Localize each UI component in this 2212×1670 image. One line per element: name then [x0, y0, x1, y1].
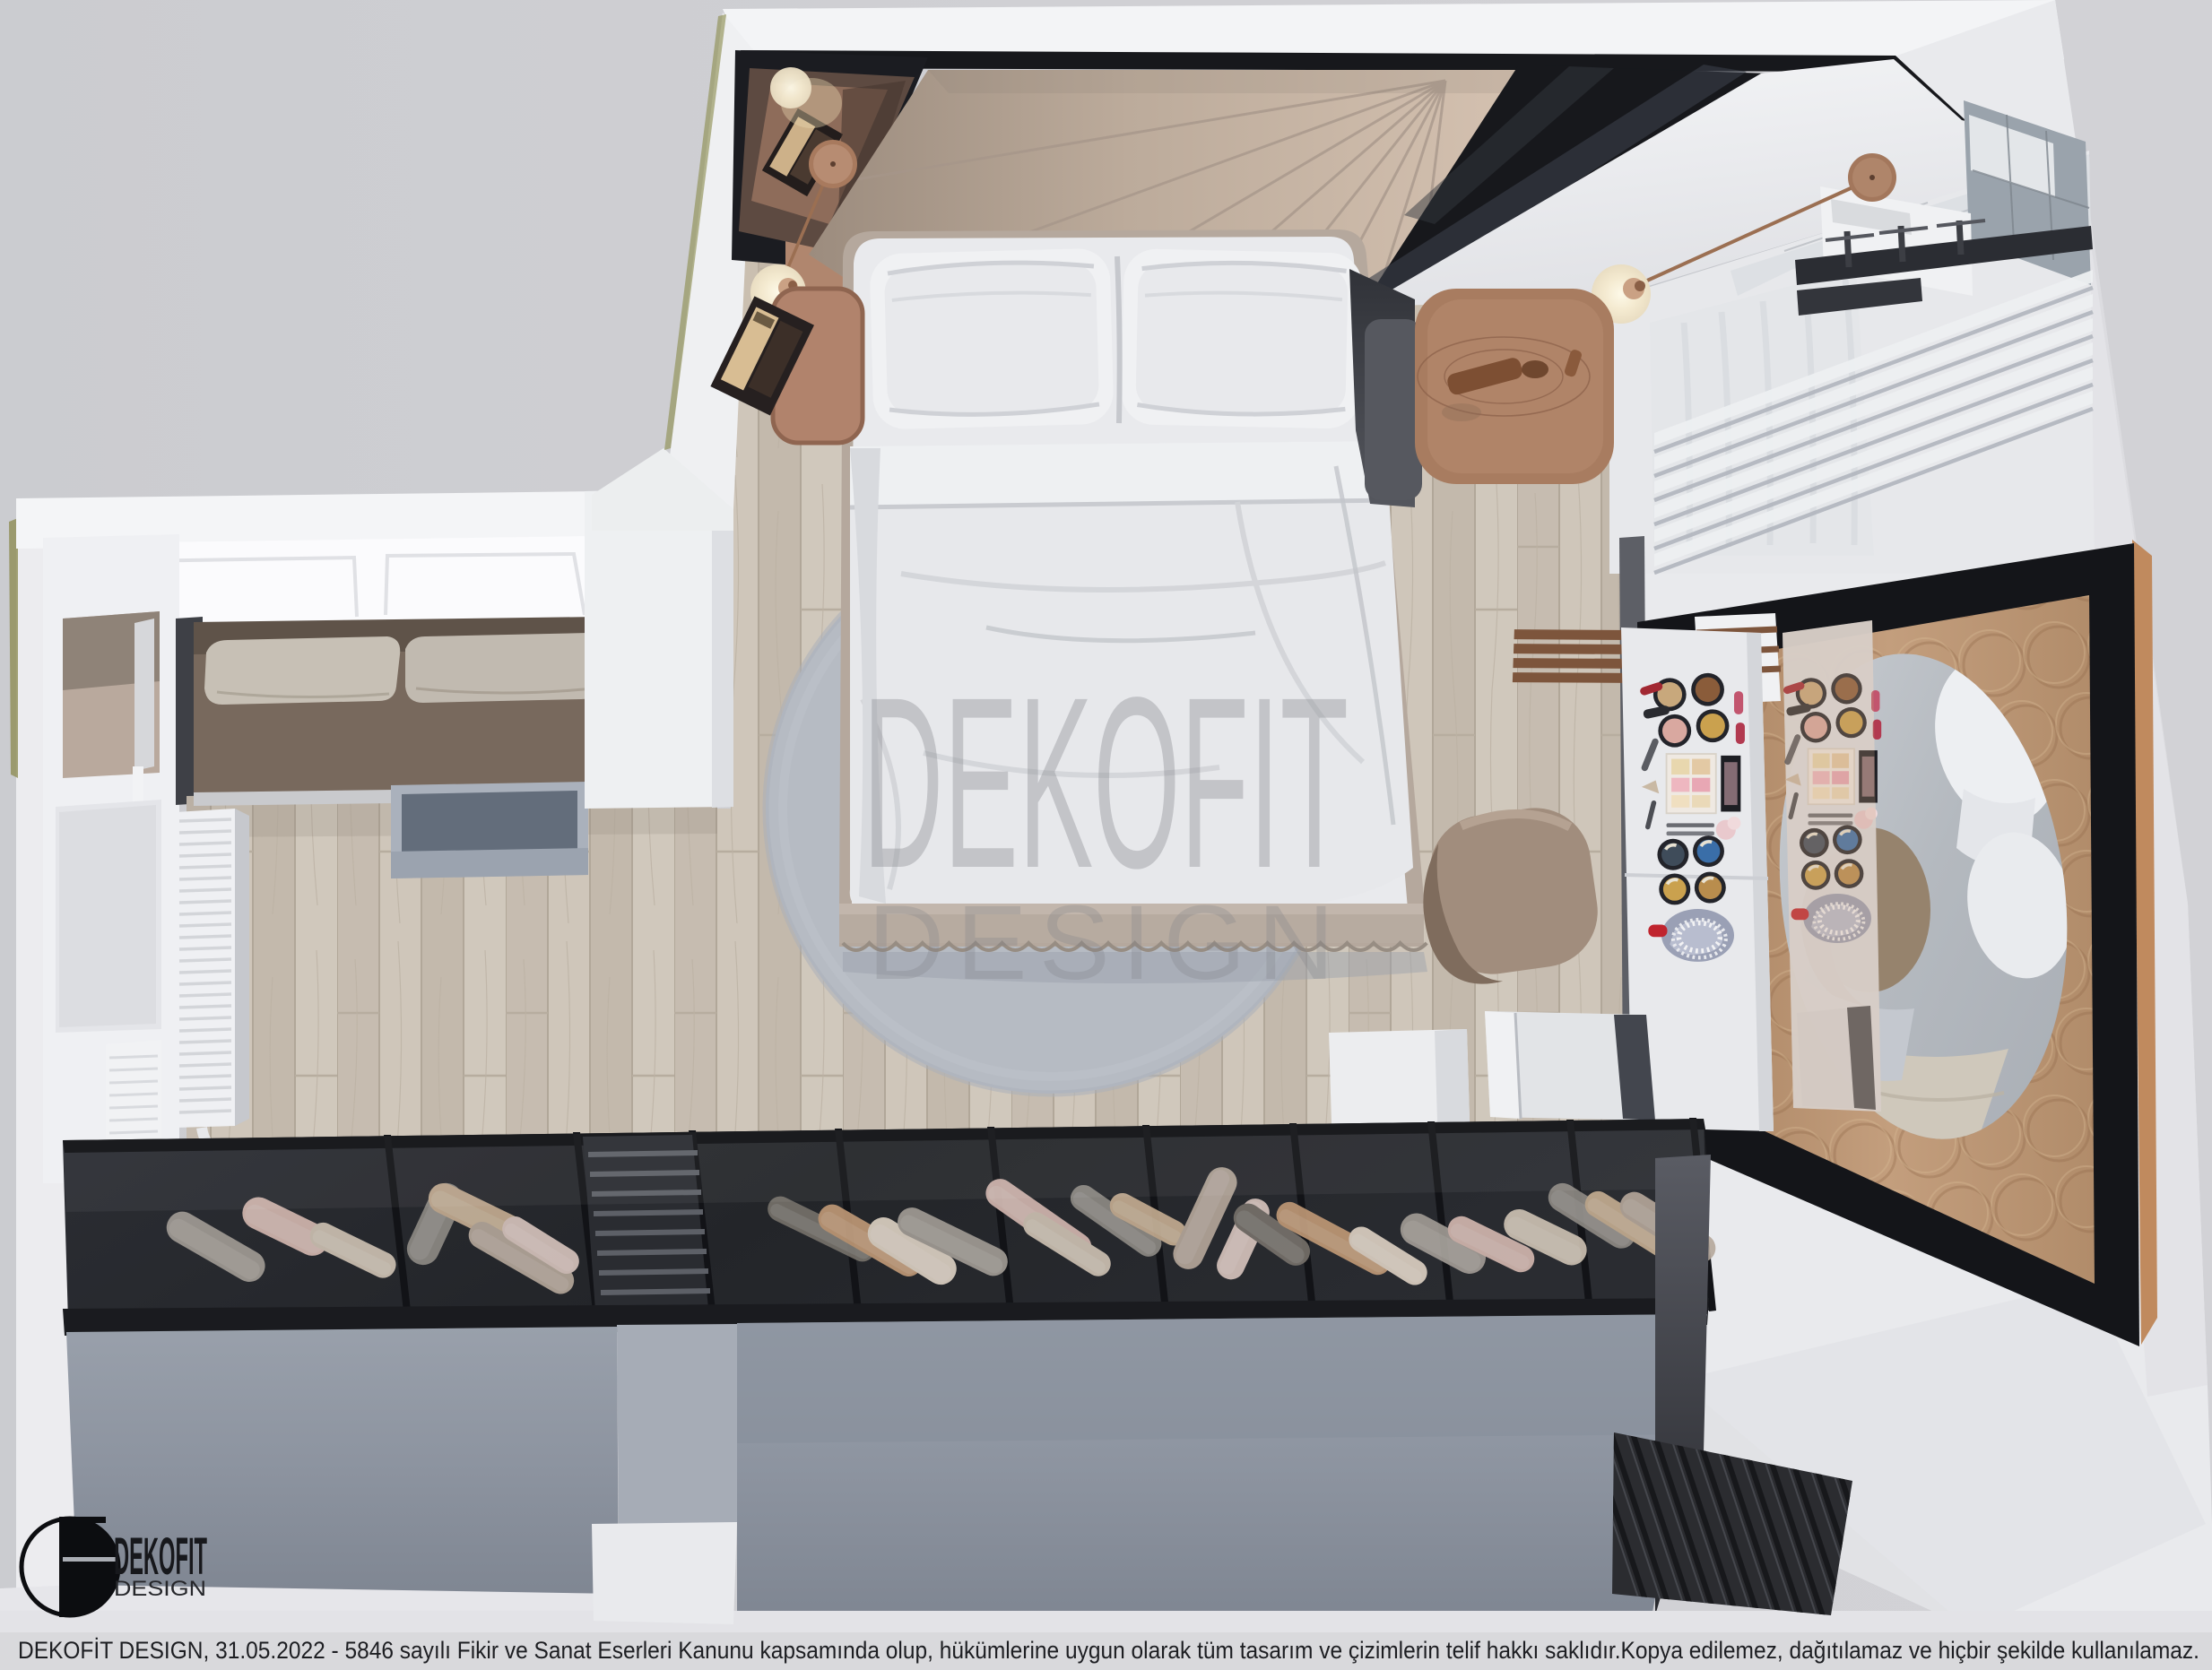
svg-text:DESIGN: DESIGN — [114, 1577, 206, 1601]
svg-text:DESIGN: DESIGN — [868, 884, 1334, 1002]
svg-text:DEKOFİT DESIGN, 31.05.2022 - 5: DEKOFİT DESIGN, 31.05.2022 - 5846 sayılı… — [18, 1636, 2199, 1664]
svg-text:DEKOFIT: DEKOFIT — [863, 646, 1349, 919]
